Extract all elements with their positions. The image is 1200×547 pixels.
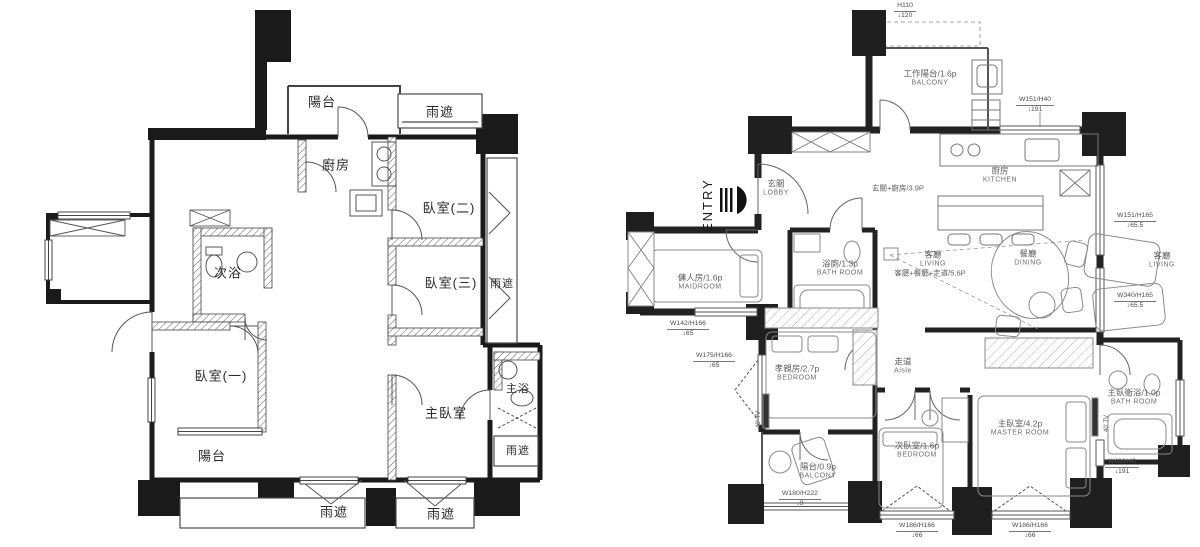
maid-room-furniture [628,232,762,306]
annotation-bottom-right: W186/H166↓66 [1009,522,1051,541]
room-label-lobby: 玄關LOBBY [763,178,789,197]
annotation-bottom-middle: W186/H166↓66 [896,522,938,541]
room-label-bath-room: 浴廁/1.3pBATH ROOM [817,258,863,277]
master-room-furniture [978,338,1098,496]
room-label-parents-room: 孝親房/2.7pBEDROOM [775,363,819,382]
room-label-work-balcony: 工作陽台/1.6pBALCONY [904,68,957,87]
room-label-second-bath: 次浴 [214,263,242,282]
room-label-canopy-bottom-right: 雨遮 [427,504,455,523]
left-plan-drawing [45,10,540,528]
floor-plan-drawing [0,0,1200,547]
entry-arrow-icon [720,186,747,214]
room-label-balcony-top: 陽台 [308,92,336,111]
master-bath-fixtures [1108,371,1172,454]
room-label-maid-room: 傭人房/1.6pMAIDROOM [678,272,722,291]
annotation-top: H110↓120 [894,2,916,21]
room-label-living-projection: 客廳LIVING [920,249,946,268]
room-label-canopy-bottom-left: 雨遮 [320,502,348,521]
room-label-dining: 餐廳DINING [1014,248,1042,267]
room-label-kitchen: 廚房 [322,155,350,174]
annotation-bottom-left: W180/H222↓9 [779,490,821,509]
annotation-top-right: W151/H40↓191 [1016,96,1054,115]
kitchen-furniture [938,134,1098,245]
room-label-master-bath-new: 主臥衛浴/1.0pBATH ROOM [1108,387,1161,406]
annotation-corner-right: W48/H40↓191 [1105,458,1139,477]
room-label-canopy-top: 雨遮 [426,102,454,121]
room-label-master-bedroom: 主臥室 [425,403,467,422]
left-plan-columns [48,10,520,526]
room-label-master-bath: 主浴 [506,380,530,396]
tv-note-left: 40' TV [756,411,762,428]
annotation-right-lower: W340/H165↓65.5 [1114,292,1156,311]
tv-note-right: 40' TV [1104,415,1110,432]
room-label-bedroom-2: 臥室(二) [423,198,476,217]
room-label-bedroom-3: 臥室(三) [425,273,478,292]
room-label-bedroom-1: 臥室(一) [195,366,248,385]
room-label-living: 客廳LIVING [1149,250,1175,269]
annotation-left-upper: W142/H166↓65 [667,320,709,339]
entry-label: ENTRY [700,178,715,232]
room-label-balcony-bottom: 陽台 [198,446,226,465]
area-note-living-dining-aisle: 客廳+餐廳+走道/5.6P [894,268,965,279]
area-note-entry-kitchen: 玄關+廚房/3.9P [872,183,924,194]
room-label-master-room: 主臥室/4.2pMASTER ROOM [991,418,1049,437]
room-label-aisle: 走道Aisle [894,356,912,375]
room-label-kitchen-new: 廚房KITCHEN [983,165,1017,184]
annotation-left-lower: W175/H166↓65 [693,352,735,371]
room-label-bedroom-2-new: 次臥室/1.6pBEDROOM [895,440,939,459]
living-dining-furniture [884,221,1166,337]
annotation-right-upper: W151/H165↓65.5 [1114,212,1156,231]
room-label-canopy-right-upper: 雨遮 [490,275,514,291]
room-label-canopy-right-lower: 雨遮 [506,442,530,458]
floor-plans-canvas: 陽台 雨遮 廚房 臥室(二) 次浴 臥室(三) 雨遮 臥室(一) 主臥室 主浴 … [0,0,1200,547]
room-label-balcony-new: 陽台/0.9pBALCONY [800,461,837,480]
